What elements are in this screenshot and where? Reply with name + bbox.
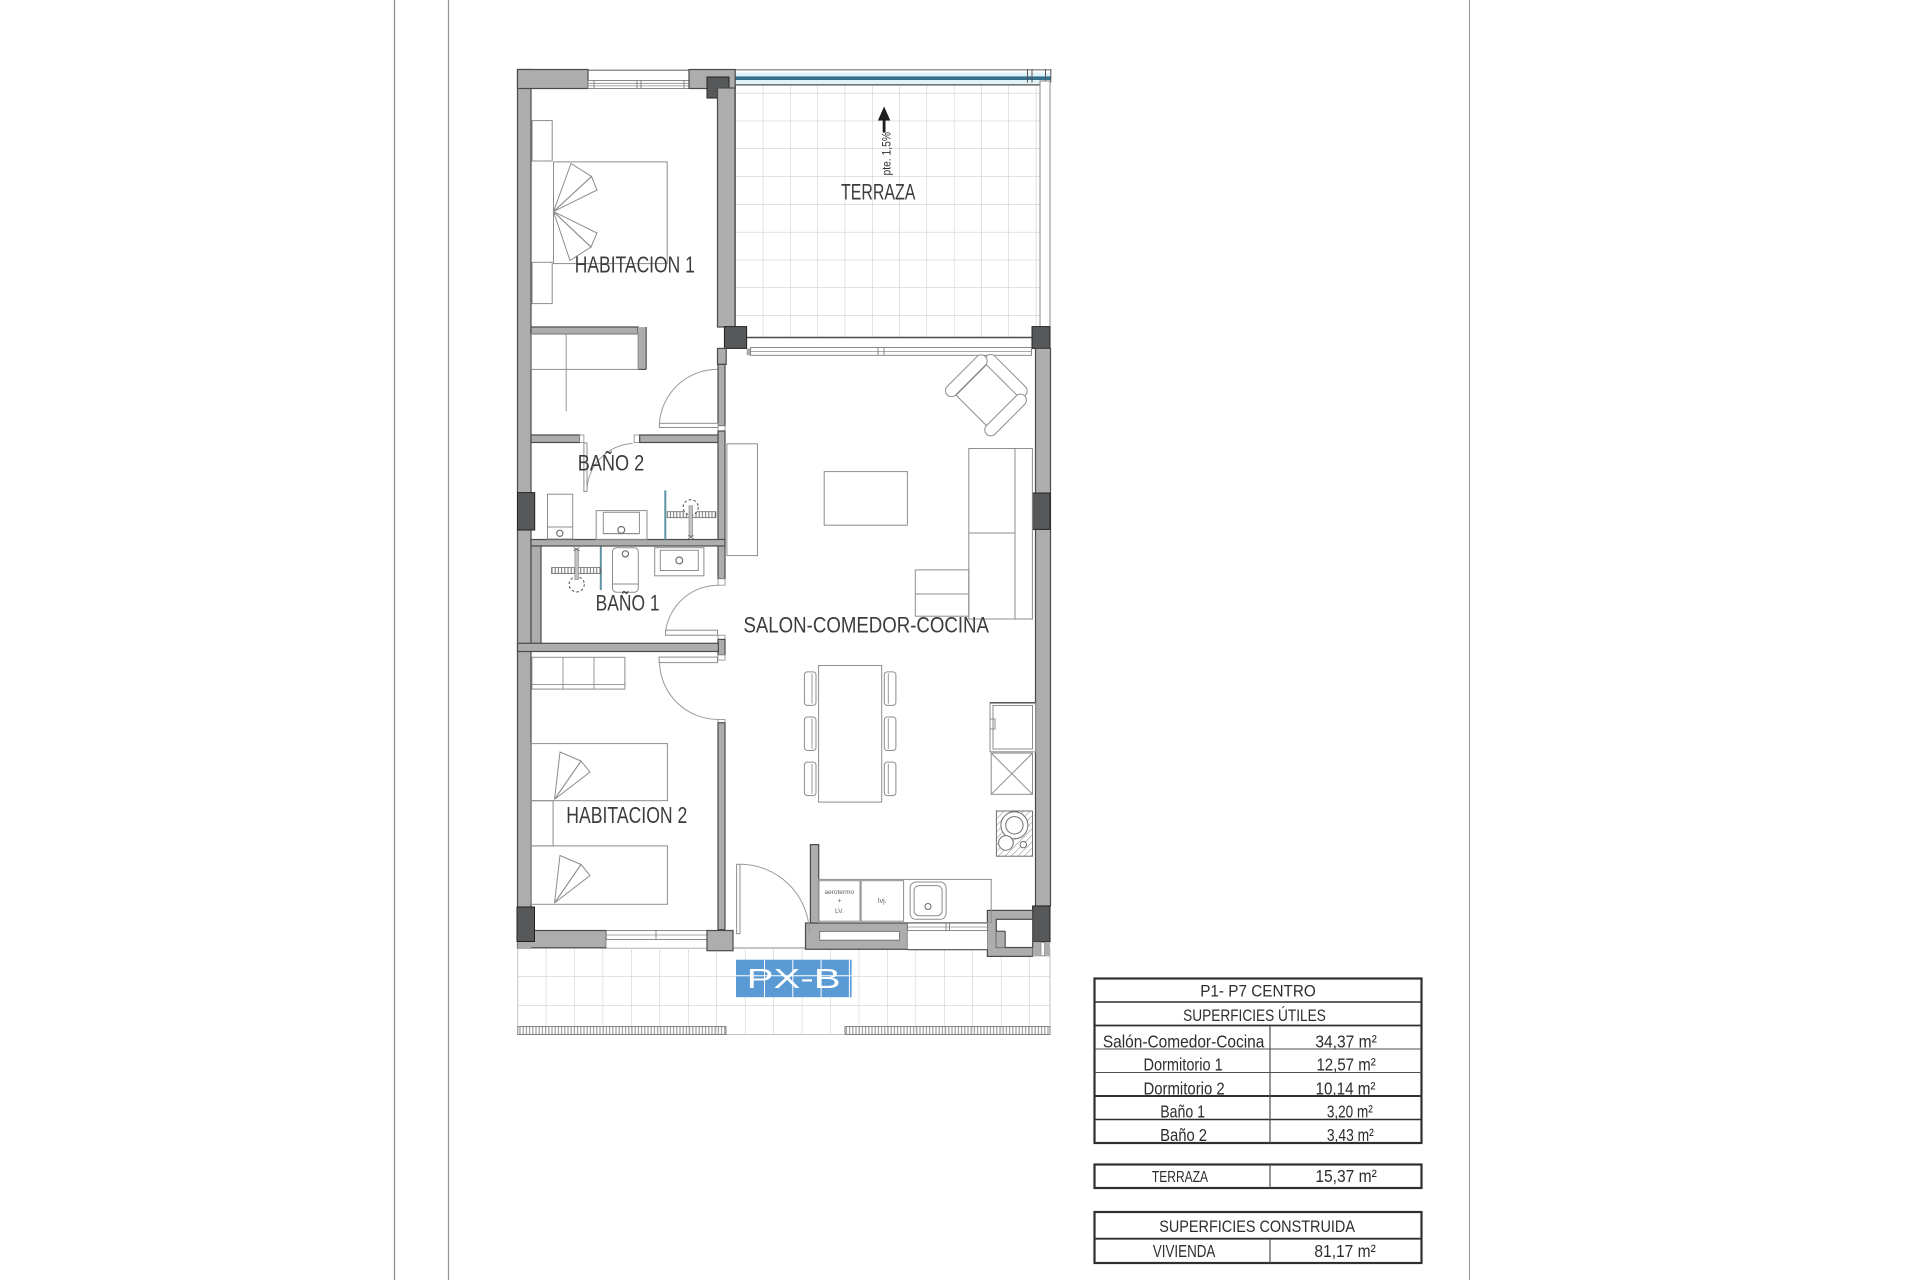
svg-text:aerotermo: aerotermo (824, 889, 854, 896)
svg-text:12,57 m²: 12,57 m² (1316, 1054, 1375, 1074)
svg-text:34,37 m²: 34,37 m² (1315, 1032, 1377, 1052)
svg-text:HABITACION 2: HABITACION 2 (566, 802, 687, 828)
svg-text:pte. 1,5%: pte. 1,5% (882, 132, 894, 176)
svg-text:Baño 2: Baño 2 (1160, 1125, 1207, 1145)
svg-text:HABITACION 1: HABITACION 1 (575, 252, 695, 278)
svg-text:10,14 m²: 10,14 m² (1316, 1078, 1376, 1098)
svg-text:3,20 m²: 3,20 m² (1327, 1101, 1373, 1121)
svg-text:Salón-Comedor-Cocina: Salón-Comedor-Cocina (1103, 1032, 1265, 1052)
svg-text:PX-B: PX-B (747, 963, 841, 994)
svg-text:Dormitorio 2: Dormitorio 2 (1143, 1078, 1224, 1098)
svg-text:LV.: LV. (835, 908, 844, 915)
svg-text:3,43 m²: 3,43 m² (1327, 1125, 1374, 1145)
svg-text:SALON-COMEDOR-COCINA: SALON-COMEDOR-COCINA (743, 612, 989, 637)
svg-text:VIVIENDA: VIVIENDA (1153, 1241, 1216, 1261)
svg-text:+: + (837, 898, 841, 905)
svg-text:Baño 1: Baño 1 (1160, 1101, 1205, 1121)
svg-text:P1- P7 CENTRO: P1- P7 CENTRO (1200, 982, 1316, 1001)
svg-text:lvj.: lvj. (878, 898, 887, 905)
svg-text:BAÑO 2: BAÑO 2 (578, 451, 645, 476)
svg-text:81,17 m²: 81,17 m² (1314, 1241, 1376, 1261)
svg-text:SUPERFICIES CONSTRUIDA: SUPERFICIES CONSTRUIDA (1159, 1217, 1355, 1236)
svg-text:TERRAZA: TERRAZA (841, 180, 916, 205)
svg-text:15,37 m²: 15,37 m² (1315, 1166, 1377, 1186)
svg-text:BAÑO 1: BAÑO 1 (596, 591, 660, 616)
svg-text:SUPERFICIES ÚTILES: SUPERFICIES ÚTILES (1183, 1006, 1326, 1025)
svg-text:TERRAZA: TERRAZA (1152, 1169, 1209, 1186)
svg-text:Dormitorio 1: Dormitorio 1 (1144, 1054, 1223, 1074)
